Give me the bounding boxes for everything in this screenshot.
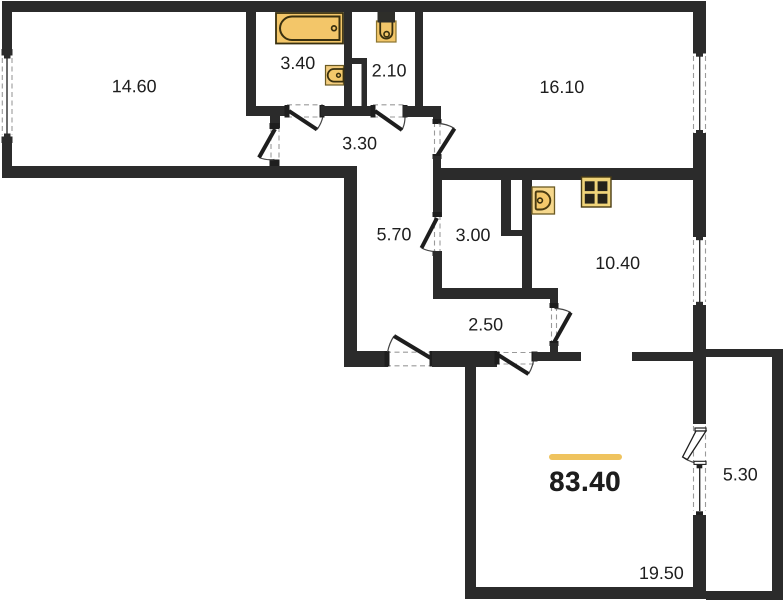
svg-text:83.40: 83.40 [549,466,621,497]
